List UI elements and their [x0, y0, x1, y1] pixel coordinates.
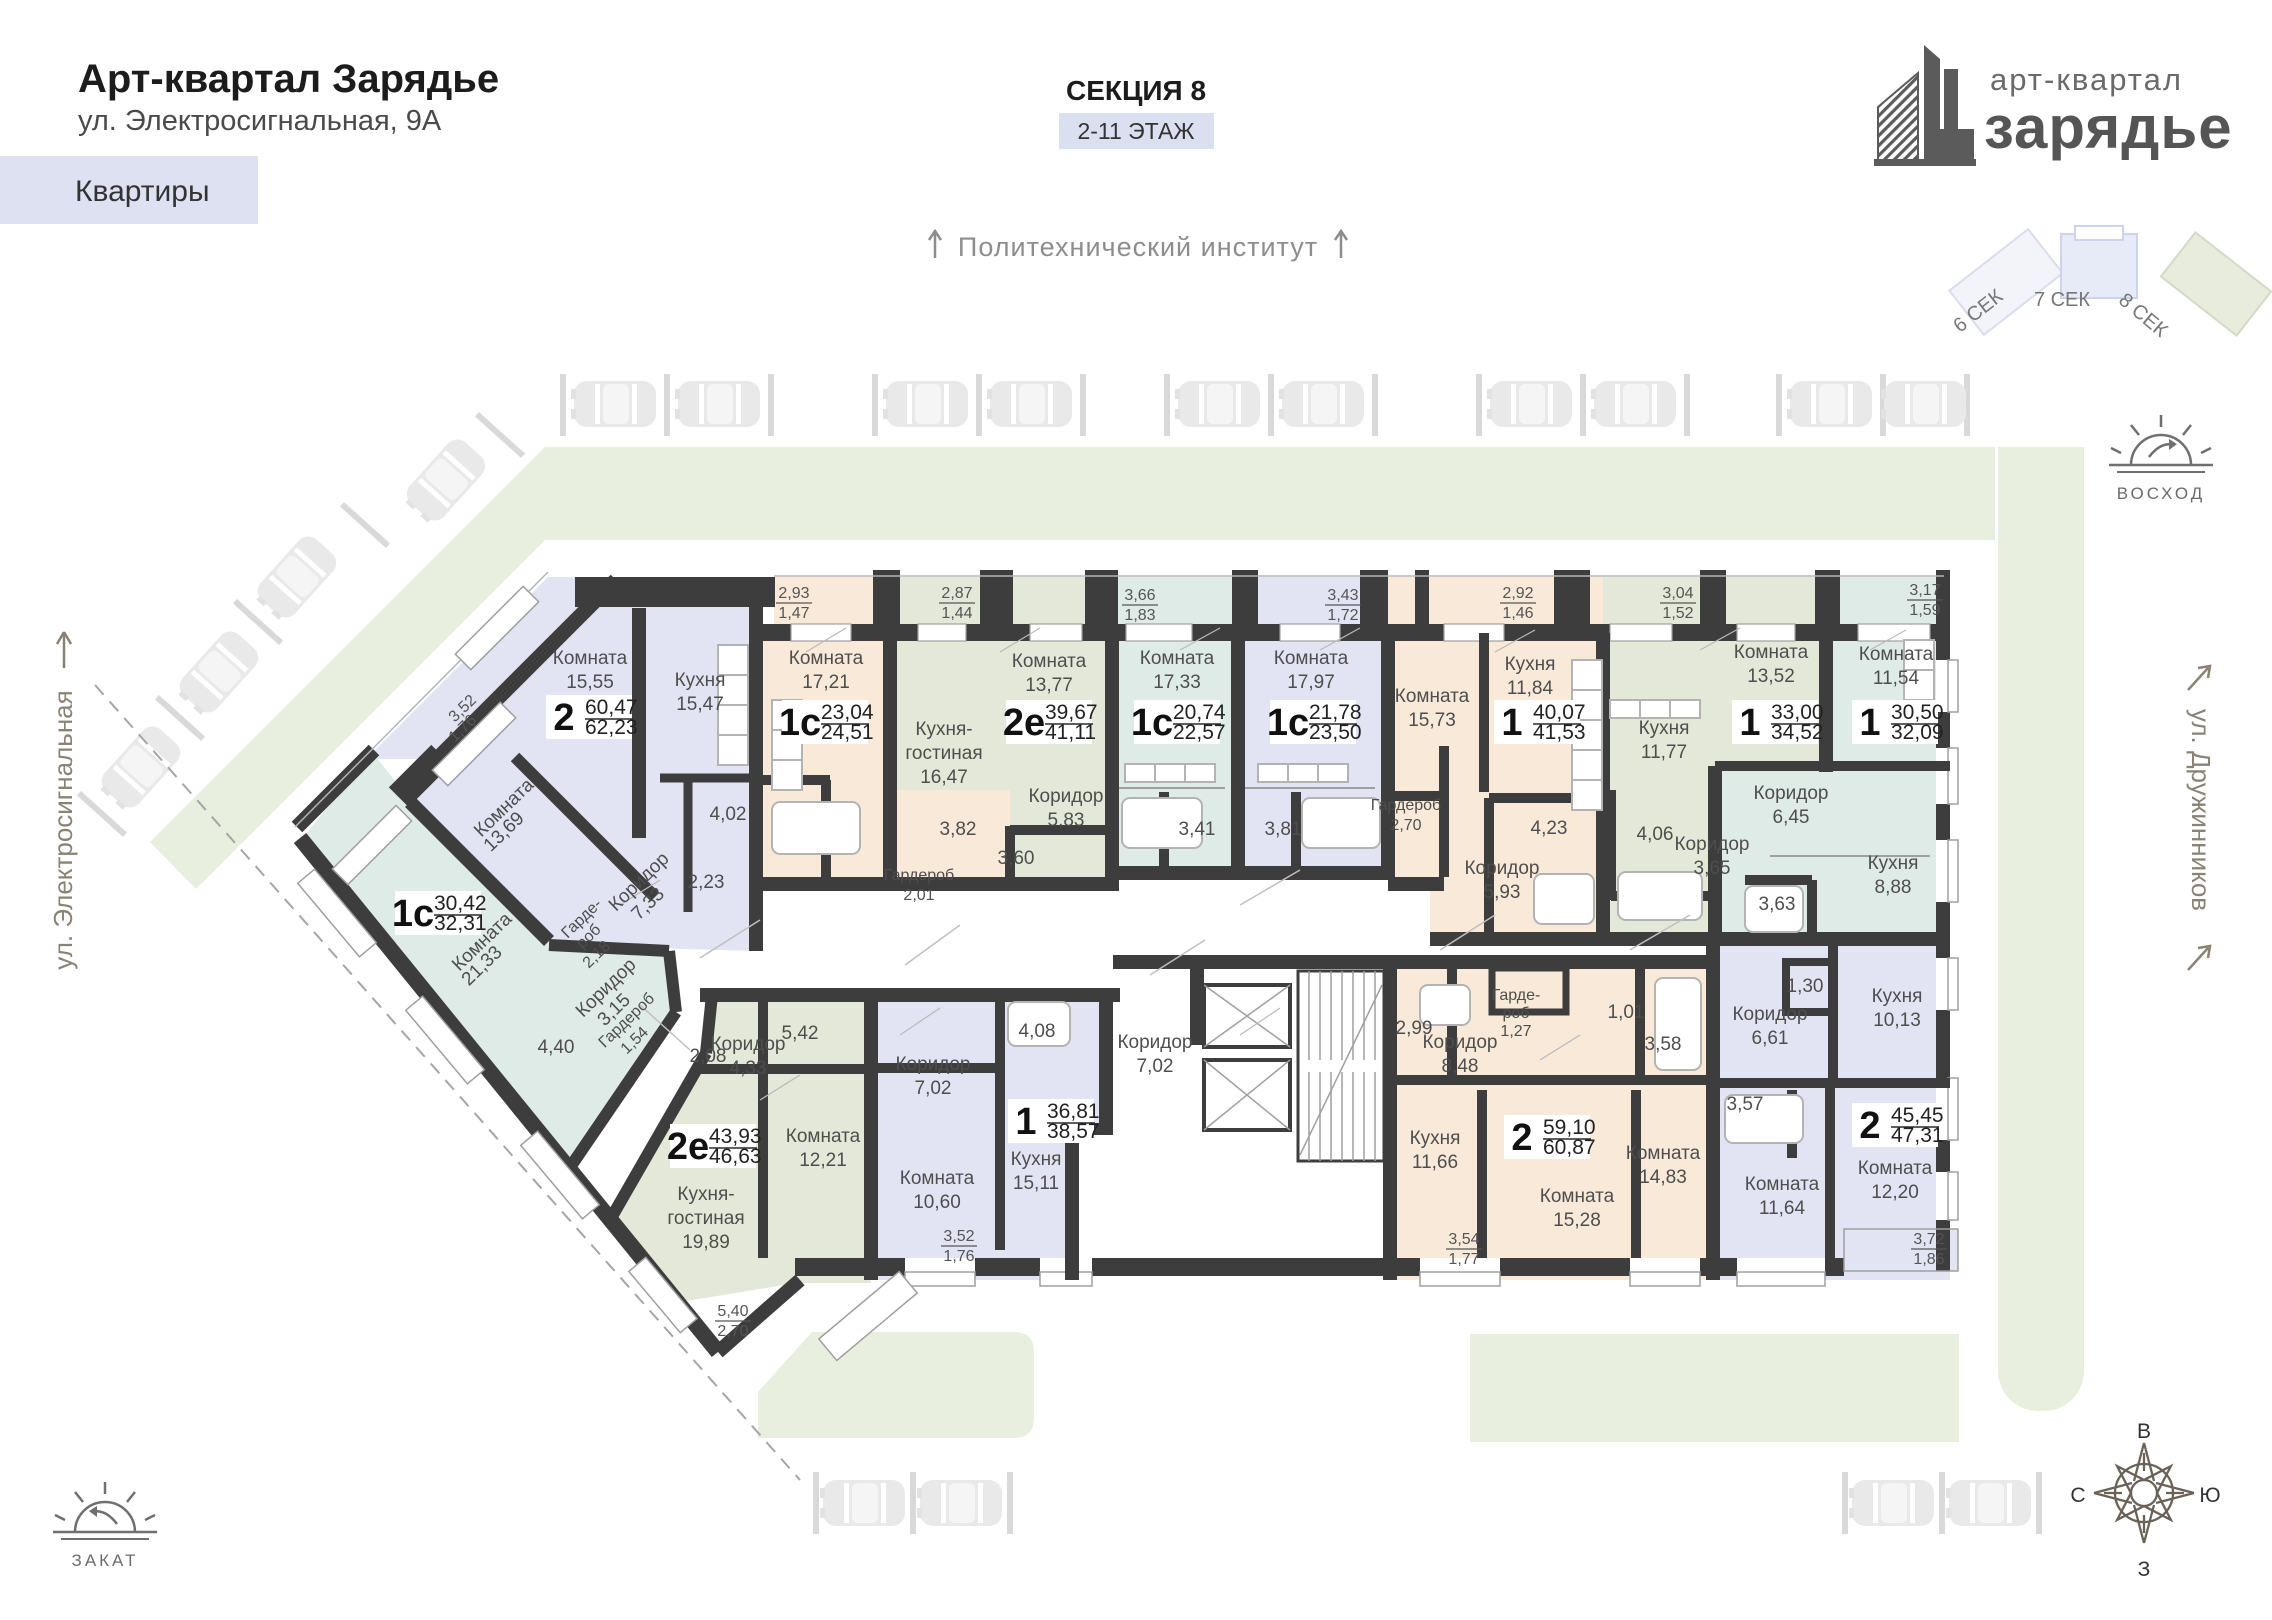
svg-text:3,04: 3,04: [1662, 585, 1693, 602]
svg-text:3,65: 3,65: [1694, 858, 1731, 879]
svg-text:Кухня: Кухня: [675, 670, 726, 691]
svg-text:2-11 ЭТАЖ: 2-11 ЭТАЖ: [1077, 118, 1194, 144]
svg-text:2: 2: [1511, 1117, 1532, 1159]
svg-text:13,52: 13,52: [1747, 666, 1795, 687]
svg-text:Комната: Комната: [1540, 1186, 1615, 1207]
svg-text:1,46: 1,46: [1502, 605, 1533, 622]
svg-text:Комната: Комната: [1274, 648, 1349, 669]
svg-text:1с: 1с: [1131, 702, 1173, 744]
svg-text:1,83: 1,83: [1124, 607, 1155, 624]
svg-text:1,47: 1,47: [778, 605, 809, 622]
svg-text:3,43: 3,43: [1327, 587, 1358, 604]
svg-text:Кухня: Кухня: [1872, 986, 1923, 1007]
svg-text:Коридор: Коридор: [1753, 783, 1828, 804]
svg-text:Комната: Комната: [1140, 648, 1215, 669]
svg-text:Коридор: Коридор: [1674, 834, 1749, 855]
svg-text:7,02: 7,02: [915, 1078, 952, 1099]
svg-text:ЗАКАТ: ЗАКАТ: [72, 1551, 139, 1570]
svg-text:3,17: 3,17: [1909, 582, 1940, 599]
svg-text:11,84: 11,84: [1507, 678, 1554, 699]
svg-text:1: 1: [1015, 1101, 1036, 1143]
svg-text:16,47: 16,47: [920, 767, 968, 788]
svg-text:12,20: 12,20: [1871, 1182, 1919, 1203]
svg-text:Арт-квартал Зарядье: Арт-квартал Зарядье: [78, 57, 499, 101]
svg-text:Комната: Комната: [553, 648, 628, 669]
svg-text:3,41: 3,41: [1179, 819, 1216, 840]
svg-text:Комната: Комната: [900, 1168, 975, 1189]
svg-text:Комната: Комната: [1859, 644, 1934, 665]
svg-text:Гардероб: Гардероб: [884, 867, 954, 884]
svg-text:2: 2: [1859, 1105, 1880, 1147]
svg-text:В: В: [2137, 1420, 2151, 1443]
svg-text:С: С: [2070, 1484, 2085, 1507]
svg-text:17,97: 17,97: [1287, 672, 1335, 693]
svg-text:2,92: 2,92: [1502, 585, 1533, 602]
svg-text:10,60: 10,60: [913, 1192, 961, 1213]
svg-text:4,02: 4,02: [710, 804, 747, 825]
svg-text:Комната: Комната: [1626, 1143, 1701, 1164]
svg-text:Комната: Комната: [786, 1126, 861, 1147]
svg-text:5,42: 5,42: [782, 1023, 819, 1044]
svg-text:Коридор: Коридор: [1422, 1032, 1497, 1053]
svg-text:1: 1: [1739, 702, 1760, 744]
svg-text:11,64: 11,64: [1759, 1198, 1806, 1219]
svg-text:Коридор: Коридор: [1732, 1004, 1807, 1025]
svg-text:12,21: 12,21: [799, 1150, 847, 1171]
svg-text:17,33: 17,33: [1153, 672, 1201, 693]
svg-text:Комната: Комната: [1858, 1158, 1933, 1179]
svg-text:роб: роб: [1503, 1005, 1530, 1022]
svg-text:17,21: 17,21: [802, 672, 850, 693]
svg-text:7,02: 7,02: [1137, 1056, 1174, 1077]
svg-text:1,59: 1,59: [1909, 602, 1940, 619]
svg-text:Комната: Комната: [1745, 1174, 1820, 1195]
svg-text:гостиная: гостиная: [667, 1208, 744, 1229]
svg-text:1с: 1с: [392, 893, 434, 935]
svg-text:3,52: 3,52: [943, 1228, 974, 1245]
svg-text:3,58: 3,58: [1645, 1034, 1682, 1055]
svg-text:Гардероб: Гардероб: [1371, 797, 1441, 814]
svg-text:3,82: 3,82: [940, 819, 977, 840]
svg-text:Гарде-: Гарде-: [1492, 987, 1541, 1004]
svg-text:3,63: 3,63: [1759, 894, 1796, 915]
svg-text:5,40: 5,40: [717, 1303, 748, 1320]
svg-text:2е: 2е: [1003, 702, 1045, 744]
svg-text:2,70: 2,70: [1390, 817, 1421, 834]
svg-text:2,87: 2,87: [941, 585, 972, 602]
svg-text:3,81: 3,81: [1265, 819, 1302, 840]
svg-text:1,44: 1,44: [941, 605, 972, 622]
svg-text:2: 2: [553, 697, 574, 739]
svg-text:3,57: 3,57: [1727, 1094, 1764, 1115]
svg-text:5,93: 5,93: [1484, 882, 1521, 903]
svg-text:гостиная: гостиная: [905, 743, 982, 764]
svg-text:1: 1: [1501, 702, 1522, 744]
svg-text:1,76: 1,76: [943, 1248, 974, 1265]
svg-text:4,40: 4,40: [538, 1037, 575, 1058]
svg-text:1с: 1с: [779, 702, 821, 744]
svg-text:8,88: 8,88: [1875, 877, 1912, 898]
svg-text:2,08: 2,08: [690, 1046, 727, 1067]
svg-text:2,70: 2,70: [717, 1323, 748, 1340]
svg-text:4,08: 4,08: [1019, 1021, 1056, 1042]
svg-text:СЕКЦИЯ 8: СЕКЦИЯ 8: [1066, 75, 1206, 106]
svg-text:5,83: 5,83: [1048, 810, 1085, 831]
svg-text:15,55: 15,55: [566, 672, 614, 693]
svg-text:Комната: Комната: [1734, 642, 1809, 663]
svg-text:3,54: 3,54: [1448, 1231, 1479, 1248]
svg-text:15,73: 15,73: [1408, 710, 1456, 731]
svg-text:арт-квартал: арт-квартал: [1990, 62, 2183, 97]
svg-text:Кухня: Кухня: [1639, 718, 1690, 739]
svg-text:11,77: 11,77: [1641, 742, 1687, 763]
svg-text:1,86: 1,86: [1913, 1251, 1944, 1268]
svg-text:1,52: 1,52: [1662, 605, 1693, 622]
svg-text:ул. Дружинников: ул. Дружинников: [2186, 709, 2216, 911]
svg-text:6,45: 6,45: [1773, 807, 1810, 828]
svg-text:1с: 1с: [1267, 702, 1309, 744]
svg-text:зарядье: зарядье: [1984, 94, 2233, 161]
svg-text:2,93: 2,93: [778, 585, 809, 602]
svg-text:Коридор: Коридор: [1117, 1032, 1192, 1053]
svg-text:1,27: 1,27: [1500, 1023, 1531, 1040]
svg-text:4,33: 4,33: [730, 1058, 767, 1079]
svg-text:15,47: 15,47: [676, 694, 724, 715]
svg-text:3,66: 3,66: [1124, 587, 1155, 604]
svg-text:1,01: 1,01: [1608, 1002, 1645, 1023]
svg-text:1,77: 1,77: [1448, 1251, 1479, 1268]
svg-text:1: 1: [1859, 702, 1880, 744]
svg-text:3,60: 3,60: [998, 848, 1035, 869]
svg-text:2,99: 2,99: [1396, 1018, 1433, 1039]
svg-text:3,72: 3,72: [1913, 1231, 1944, 1248]
svg-text:Кухня: Кухня: [1868, 853, 1919, 874]
svg-text:11,54: 11,54: [1873, 668, 1920, 689]
svg-text:Комната: Комната: [789, 648, 864, 669]
svg-text:Политехнический институт: Политехнический институт: [958, 232, 1318, 262]
svg-text:15,11: 15,11: [1013, 1173, 1059, 1194]
svg-text:15,28: 15,28: [1553, 1210, 1601, 1231]
svg-text:Кухня-: Кухня-: [677, 1184, 734, 1205]
svg-text:Ю: Ю: [2199, 1484, 2220, 1507]
svg-text:З: З: [2138, 1558, 2151, 1581]
svg-text:19,89: 19,89: [682, 1232, 730, 1253]
svg-text:Кухня: Кухня: [1505, 654, 1556, 675]
svg-text:14,83: 14,83: [1639, 1167, 1687, 1188]
svg-text:11,66: 11,66: [1412, 1152, 1458, 1173]
svg-text:8,48: 8,48: [1442, 1056, 1479, 1077]
svg-text:1,30: 1,30: [1787, 976, 1824, 997]
svg-text:1,72: 1,72: [1327, 607, 1358, 624]
svg-text:Комната: Комната: [1012, 651, 1087, 672]
svg-text:13,77: 13,77: [1025, 675, 1073, 696]
svg-text:Кухня-: Кухня-: [915, 719, 972, 740]
svg-text:6,61: 6,61: [1752, 1028, 1789, 1049]
svg-text:4,23: 4,23: [1531, 818, 1568, 839]
svg-text:2е: 2е: [667, 1126, 709, 1168]
svg-text:Коридор: Коридор: [1464, 858, 1539, 879]
svg-text:2,01: 2,01: [903, 887, 934, 904]
svg-text:Комната: Комната: [1395, 686, 1470, 707]
svg-text:ул. Электросигнальная: ул. Электросигнальная: [48, 690, 78, 969]
svg-text:Кухня: Кухня: [1011, 1149, 1062, 1170]
svg-text:2,23: 2,23: [688, 872, 725, 893]
svg-text:ВОСХОД: ВОСХОД: [2117, 484, 2205, 503]
svg-text:Кухня: Кухня: [1410, 1128, 1461, 1149]
svg-text:Квартиры: Квартиры: [75, 175, 210, 208]
svg-text:10,13: 10,13: [1873, 1010, 1921, 1031]
svg-text:7 СЕК: 7 СЕК: [2034, 289, 2090, 311]
svg-text:4,06: 4,06: [1637, 824, 1674, 845]
svg-text:Коридор: Коридор: [1028, 786, 1103, 807]
svg-text:ул. Электросигнальная, 9А: ул. Электросигнальная, 9А: [78, 105, 442, 137]
svg-text:Коридор: Коридор: [895, 1054, 970, 1075]
